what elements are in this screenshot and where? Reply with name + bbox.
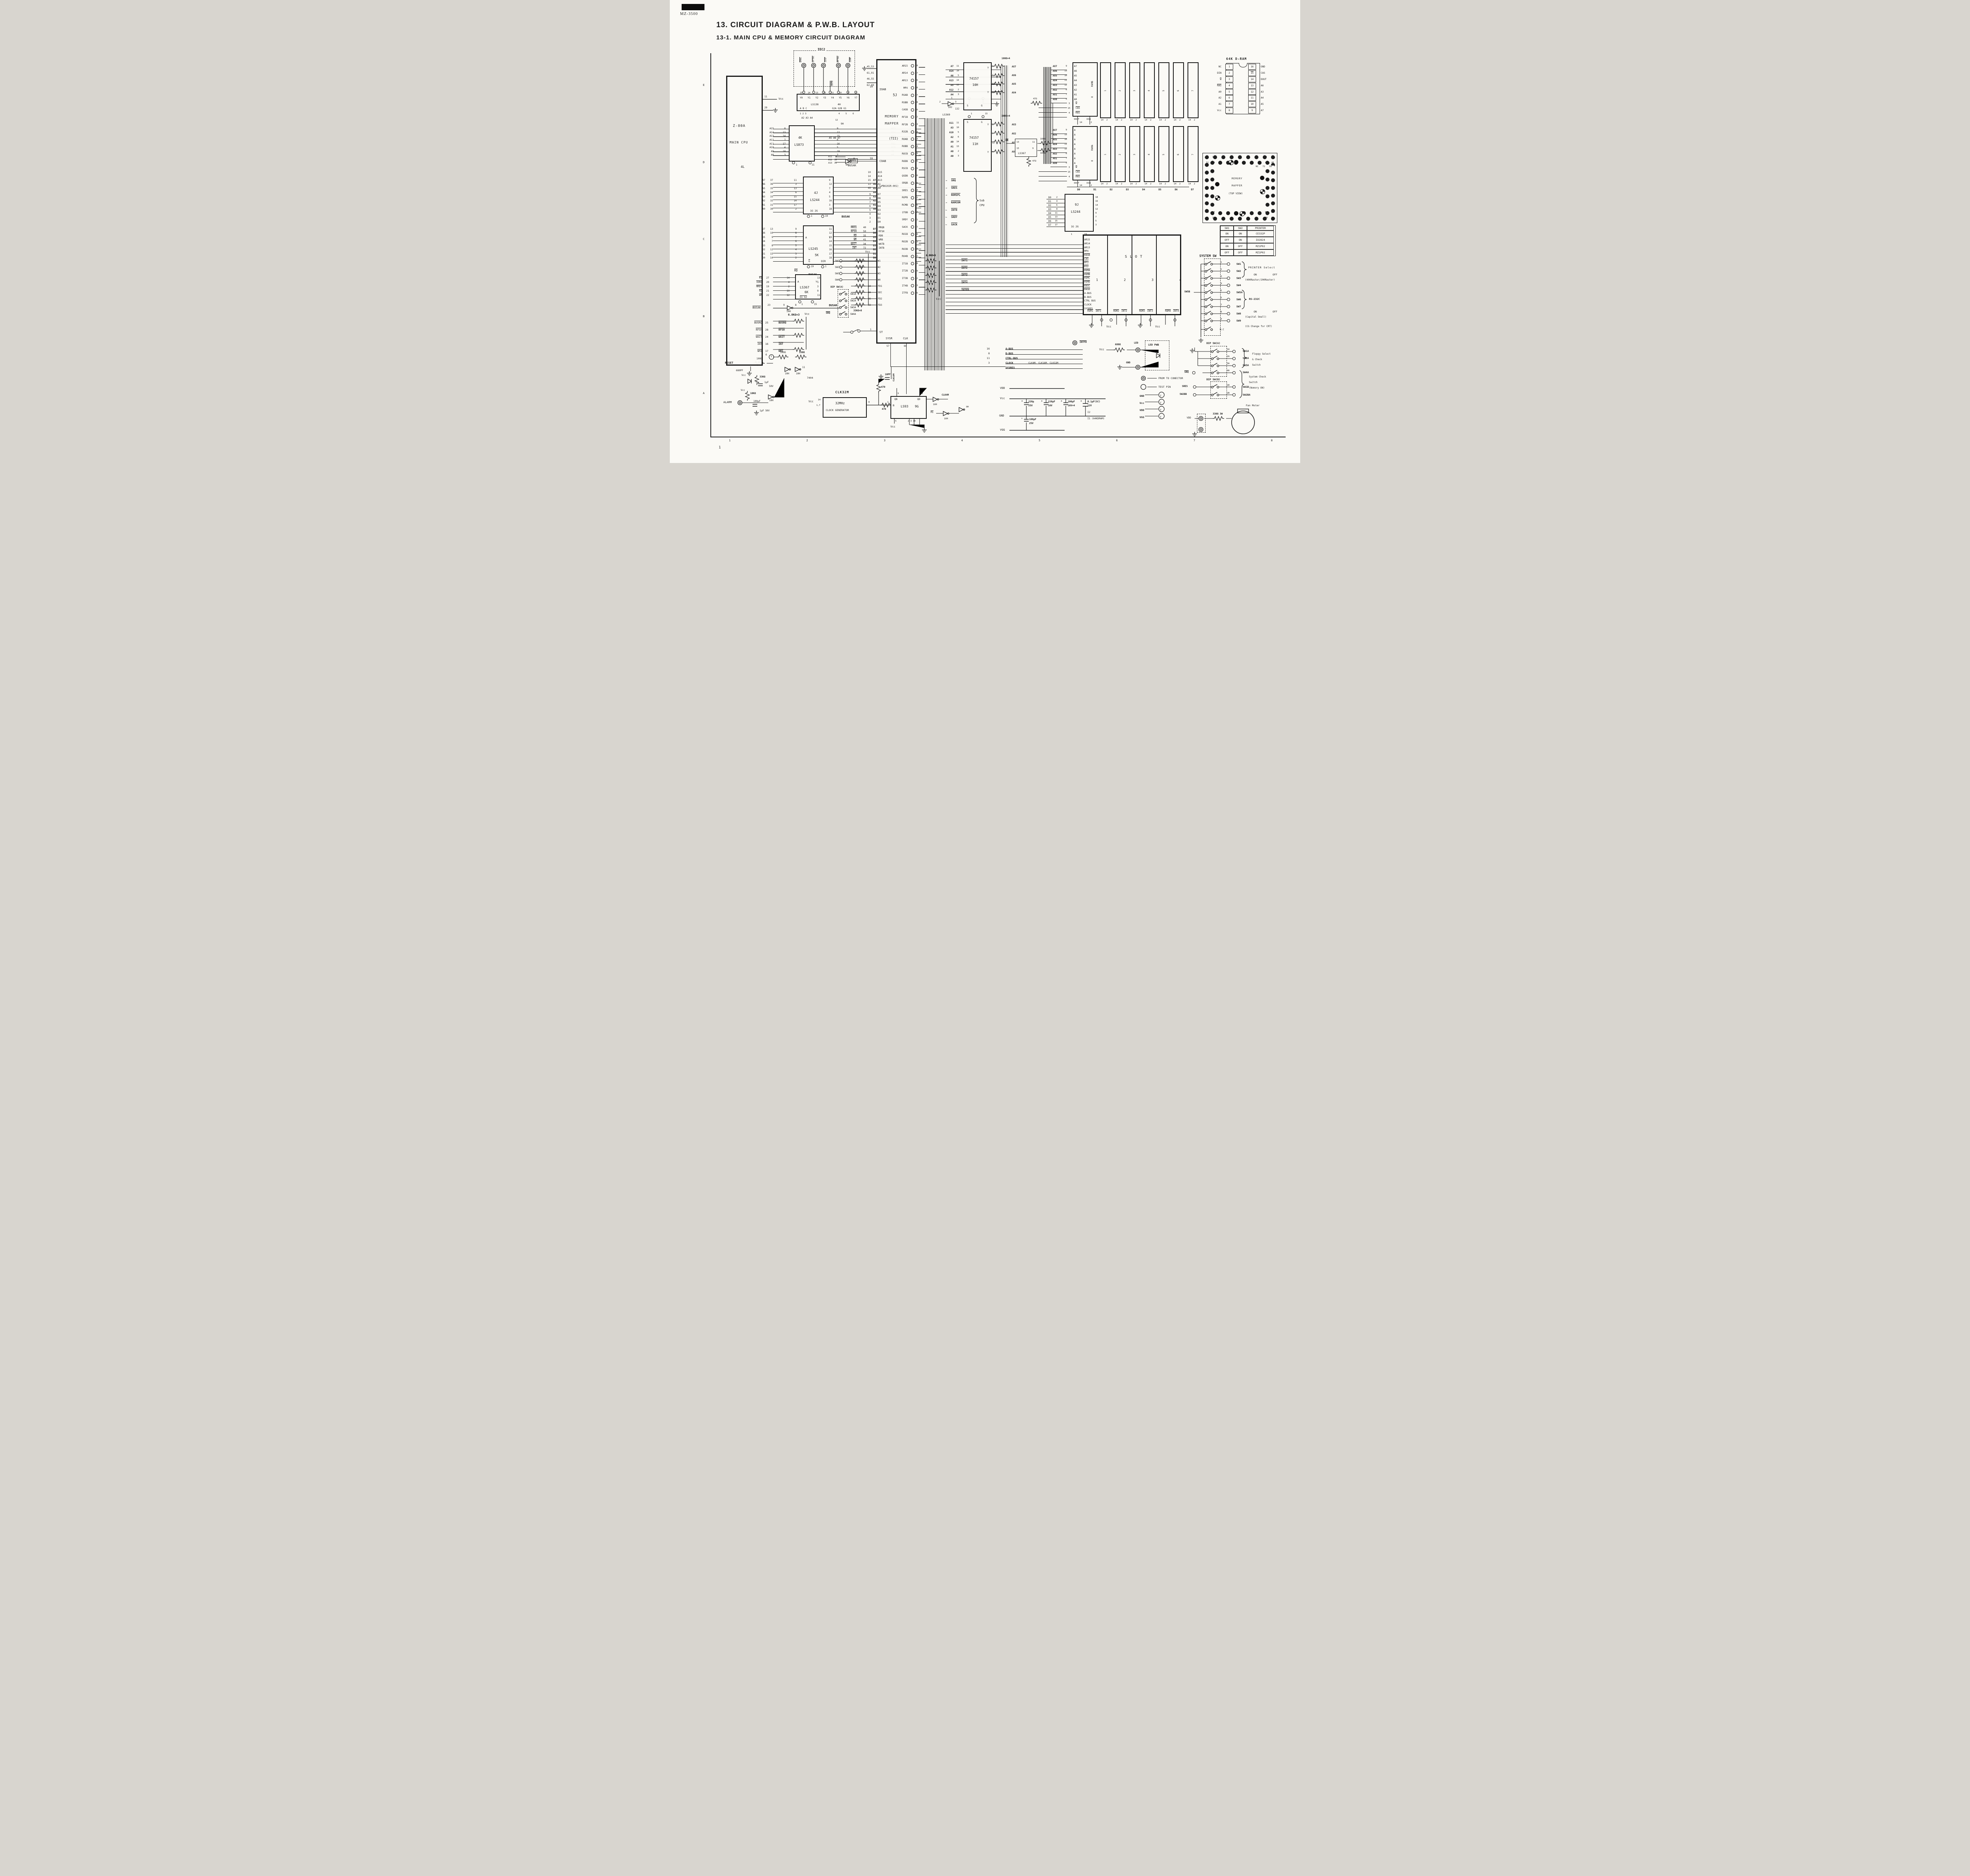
int-row: INTFD: [961, 286, 969, 294]
iec2-pin-label: MFTDC: [837, 52, 840, 62]
pin: 44: [864, 291, 871, 294]
pin: 9: [864, 193, 871, 196]
chip-p1: 14: [1101, 119, 1104, 121]
signal-label: ITFB: [896, 292, 908, 294]
ls138-y-label: Y5: [839, 97, 842, 99]
signal-label: RO2B: [896, 240, 908, 243]
ann-on1: ON: [1254, 273, 1257, 276]
chip-p1: 14: [1145, 119, 1147, 121]
buf9j-en1: 1: [1071, 233, 1072, 236]
pin-in: 3: [773, 183, 798, 186]
chip-p2: 2: [1121, 183, 1122, 185]
pin-in: 6: [773, 191, 798, 194]
mapper-ioab: IOAB: [879, 88, 886, 91]
pin-bubble: [911, 211, 914, 214]
bl-100u: 100µF: [753, 400, 760, 403]
pin: 14: [953, 141, 959, 143]
mapper-right-row: RO3B 64: [896, 245, 922, 253]
intfd-label: INTFD: [1080, 341, 1087, 344]
ls138-y: 7 Y7: [855, 96, 857, 99]
pin: 4: [864, 213, 871, 216]
signal-label: D0: [757, 257, 765, 259]
testpoint-t: T: [1144, 416, 1162, 419]
ls873-row: A15 8 9 A15: [764, 127, 896, 131]
pin: 6: [1061, 89, 1067, 91]
bl-c1u: 1µF: [764, 381, 769, 384]
pin-out: 16: [1057, 200, 1098, 203]
bufwr-b1: 11: [1032, 141, 1035, 143]
signal-net: INT: [768, 342, 794, 346]
chip-p2: 2: [1194, 183, 1195, 185]
rail-vcc: Vcc: [1000, 397, 1005, 400]
topview-pin: 20: [1204, 210, 1210, 215]
inv369-b: 3: [955, 101, 956, 103]
signal-label: WAIT: [749, 335, 762, 338]
dbus-label: D2: [1110, 188, 1113, 191]
mapper-data-row: 2 D0: [864, 220, 881, 224]
pin-in: 2: [773, 208, 798, 210]
sw-label: SW4: [1226, 284, 1241, 287]
sw-label: SW1A: [1232, 350, 1249, 353]
ramb-ras: RAS: [1076, 112, 1080, 115]
gnd-ref: 61,91: [867, 72, 874, 74]
bl-plus: +: [756, 381, 757, 384]
pin: 5: [953, 74, 959, 77]
pin: 12: [1061, 148, 1067, 150]
cpu-ref: 4L: [741, 165, 745, 169]
column-label: 5: [1039, 439, 1040, 442]
pin: 6: [1061, 152, 1067, 155]
pin: 30: [914, 175, 922, 177]
pin-bubble: [911, 123, 914, 126]
mux-out-row: 7 AX2: [992, 129, 1016, 138]
ls138-gp: 4: [838, 113, 840, 115]
topview-pin: 72: [1260, 165, 1267, 168]
pin: 39: [914, 270, 922, 272]
cap2-voltage: 25V: [1029, 422, 1033, 425]
redaction-bar: [682, 4, 704, 10]
ls93-gnd-pins: 2 3 10: [908, 420, 916, 422]
buffer-row: A2 32 14 16 A2: [757, 199, 876, 203]
topview-dot-check: [1215, 195, 1220, 201]
slot-pin-row: CTRL BUS: [1084, 299, 1096, 303]
pin-out: 18: [1057, 196, 1098, 199]
cpu-pin: 16: [762, 342, 768, 346]
pin: 23: [914, 138, 922, 140]
signal-label: A2: [946, 136, 953, 139]
mapper-right-row: RO2B 63: [896, 238, 922, 245]
dipa-title: DIP SW(A): [1206, 342, 1220, 345]
ram-ax-row: AX2 6 A2: [1053, 87, 1077, 92]
pin: 9: [992, 65, 997, 68]
cpu-pin: 28: [762, 328, 768, 331]
led-gnd: GND: [1126, 362, 1130, 364]
bufwr-a1: 13: [1017, 141, 1019, 143]
ls138-abc-pins: 1 2 3: [800, 113, 807, 115]
ls93-qd: QD: [917, 398, 920, 401]
signal-label: D1: [757, 253, 765, 255]
ls93-p12: 12: [920, 392, 923, 395]
signal-label: A8: [946, 150, 953, 153]
led-label: LED: [1134, 342, 1138, 345]
mapper-right-row: ITFB 36: [896, 289, 922, 297]
mapper-addr: 10 A15 14 A14 15 A13 13 A1 49 A0: [864, 170, 882, 190]
signal-label: INT: [749, 342, 762, 346]
c10pf: 10PF: [885, 374, 890, 376]
iec2-pin-label: DMAC: [800, 52, 802, 62]
ls873-row: A10 4 5 A10: [764, 146, 896, 150]
slot-vcc1: Vcc: [1106, 325, 1111, 329]
bl-inv2: 10H: [796, 373, 800, 376]
pullup-rows: BUSRQ 25 BUSRQ RFSH 28 RFSH WAIT 24 WAIT…: [749, 319, 794, 355]
ann-off2: OFF: [1273, 310, 1277, 313]
mapper-right-row: ROAB 23: [896, 136, 922, 143]
slot-pin-row: ROMB: [1084, 272, 1096, 276]
xcvr5k-dir: DIR: [821, 260, 826, 263]
ram-ax-row: AX1 7 A1: [1053, 92, 1077, 97]
signal-out: D1: [838, 253, 876, 255]
chip-number: 2: [1119, 87, 1122, 91]
pin-bubble: [911, 284, 914, 287]
mapper-right-row: IT1B 38: [896, 260, 922, 268]
page-number: 1: [719, 446, 721, 450]
frame-bottom: [710, 437, 1286, 437]
signal-label: A9: [946, 141, 953, 143]
slot-vcc2: Vcc: [1155, 325, 1160, 329]
mapper-right-row: ROPB 22: [896, 194, 922, 202]
ram-ax-row: AX7 9 A: [1053, 128, 1076, 132]
pin-out: 15: [799, 135, 850, 138]
cpu-pin: 17: [762, 350, 768, 353]
cpu-pin: 7: [765, 240, 773, 243]
ax-label: AX2: [1053, 152, 1061, 155]
mapper-right-row: RF2B 33: [896, 121, 922, 128]
ls138-y: 9 Y6: [847, 96, 849, 99]
mux-out-row: 12 AX1: [992, 138, 1016, 147]
mapper-data-row: 5 D3: [864, 208, 881, 212]
signal-label: A1: [757, 204, 765, 206]
subcpu-rows: → SRQ → SRES → ROMIPL → RAMCOM ← INT0: [946, 177, 960, 228]
chip-number: 3: [1134, 151, 1136, 155]
chip-p1: 14: [1130, 183, 1133, 185]
dbus-label: D3: [1126, 188, 1129, 191]
a-label: A: [1067, 162, 1076, 165]
sw-label: SW4: [831, 279, 839, 281]
int-label: INT1: [961, 259, 968, 262]
sw-number: 7: [1221, 304, 1226, 306]
sw-label: SW7: [1226, 305, 1241, 308]
signal-label: D2: [1045, 204, 1051, 207]
arrow: →: [946, 186, 951, 190]
signal-label: A13: [764, 135, 774, 138]
dip-row: SW3A: [850, 304, 856, 311]
iec2-pins: DMACSFTDCIOSFMFTDCIOMF: [800, 52, 852, 62]
inv369-ref: 10J: [948, 106, 952, 109]
pin: 28: [914, 101, 922, 104]
brace-line: & Check: [1252, 357, 1271, 363]
bus-row: 3 CLOCK CLK4M, CLK16M, CLK32M: [983, 361, 1058, 365]
mapper-right-row: RODB 26: [896, 158, 922, 165]
dbus-label: D0: [1077, 188, 1080, 191]
a-label: A: [1067, 134, 1076, 136]
ax-label: AX2: [1053, 89, 1061, 91]
pin: 16: [914, 79, 922, 82]
chip-p1: 14: [1145, 183, 1147, 185]
dram-pin-row: 9 A7: [1248, 108, 1266, 114]
ls138-gate: 9H: [841, 123, 844, 126]
chip-p2: 2: [1165, 183, 1166, 185]
sw-label: SW3: [1226, 277, 1241, 280]
rama-din-pin: 2: [1091, 184, 1092, 187]
sw-number: 2: [1221, 268, 1226, 271]
bl-gate: 10H: [769, 400, 773, 402]
power-n1: I1 (64KDRAM): [1087, 418, 1104, 420]
signal-ext: WAIT: [846, 243, 857, 245]
signal-label: D5: [1045, 216, 1051, 219]
slot-pin-row: AR13: [1084, 245, 1096, 249]
signal-net: WAIT: [768, 335, 794, 338]
chip-number: 7: [1192, 87, 1195, 91]
pin: 9: [992, 124, 997, 126]
ram-ax-row: AX2 6 A: [1053, 151, 1076, 156]
pin-out: 19: [799, 150, 850, 153]
buffer-row: A5 35 13 7 A5: [757, 186, 876, 191]
clockgen-vcc: Vcc: [808, 400, 814, 403]
signal-label: D7: [871, 193, 881, 196]
dbus-line: [1067, 187, 1189, 187]
businv-b: 8: [795, 304, 797, 307]
mux-in-row: A5 13: [946, 83, 959, 87]
pin-in: 4: [1051, 200, 1057, 203]
pin-in: 13: [1051, 216, 1057, 218]
pin-bubble: [911, 196, 914, 199]
signal-label: AR13: [896, 79, 908, 82]
signal-label: A12: [764, 139, 774, 141]
mapper-right-row: RF1B 32: [896, 113, 922, 121]
ann-cg: (CG Change for CRT): [1245, 325, 1272, 328]
mux-out-row: 9 AX3: [992, 120, 1016, 129]
ramb-cas: CAS: [1076, 107, 1080, 110]
slot-pin-row: MPX: [1084, 249, 1096, 253]
r470a: 470: [881, 386, 885, 389]
pin-out: 16: [798, 199, 838, 202]
pin: 3: [953, 93, 959, 96]
mapper-right-row: ROCB 25: [896, 150, 922, 158]
chip-p2: 2: [1136, 183, 1137, 185]
slot-pin-row: AR15: [1084, 238, 1096, 242]
ls873-oe-pin: 11: [812, 164, 814, 167]
mapper-clk: CLK: [903, 337, 908, 340]
signal-label: A10: [946, 131, 953, 134]
dram-pin-row: A2 6: [1212, 95, 1233, 101]
pin-bubble: [911, 277, 914, 280]
printer-table-row: ON ON CE332P: [1220, 231, 1275, 237]
businv-sig: BUSAK: [753, 307, 761, 310]
cpu-pin: 25: [762, 321, 768, 324]
pin: 12: [992, 83, 997, 85]
coab-out: 8: [853, 158, 855, 160]
ramb-bank: 0: [1091, 94, 1094, 98]
ls873-en-pin: 1: [796, 164, 797, 167]
dbus-label: D1: [1093, 188, 1096, 191]
ram-chip: 5 14 2: [1158, 62, 1169, 118]
pin: 6: [953, 136, 959, 138]
dip-row: 3A SW3A: [1227, 362, 1249, 369]
muxa-name: 74157: [969, 77, 979, 81]
ramb-dout-pin: 14: [1080, 121, 1082, 124]
int-label: INTFD: [961, 288, 969, 292]
pin: 10: [832, 159, 837, 161]
pin: 35: [857, 234, 866, 237]
mux-in-row: A1 13: [946, 144, 959, 149]
a-label: A3: [1067, 84, 1077, 87]
dram-title: 64K D-RAM: [1226, 58, 1247, 61]
pin-label: A5: [1256, 103, 1264, 106]
inv369-en: 1: [951, 97, 952, 99]
arrow: →: [946, 179, 951, 182]
topview-pin: NC: [1254, 165, 1260, 168]
slot-pin-label: AR13: [1084, 246, 1090, 249]
buffer-row: D4 11 9: [1045, 211, 1098, 215]
ls93-p1: 1: [887, 401, 888, 403]
signal-label: A4: [757, 191, 765, 194]
syssw-row: 7 SW7: [1221, 303, 1243, 310]
ram-chip: 2 14 2: [1115, 62, 1126, 118]
pin-bubble: [911, 152, 914, 155]
signal-label: A0: [757, 208, 765, 210]
net-busak: BUSAK: [848, 164, 856, 167]
muxa-ref: 10H: [972, 84, 978, 87]
bus-count: 8: [983, 352, 990, 355]
mux-in-row: A13 14: [946, 78, 959, 83]
ram-ax-row: AX6 13 A6: [1053, 69, 1077, 73]
pin: 43: [914, 284, 922, 287]
slot-div3: [1156, 235, 1157, 314]
ramb-din-pin: 2: [1091, 121, 1092, 124]
coab-inputs: A11 9 A12 10 A13 11: [826, 155, 837, 165]
pin: 33: [914, 123, 922, 126]
ramb-ax-rows: AX7 9 A7 AX6 13 A6 AX5 10 A5 AX4 11 A4: [1053, 64, 1077, 102]
pin-bubble: [911, 233, 914, 236]
page-title: 13. CIRCUIT DIAGRAM & P.W.B. LAYOUT: [716, 21, 875, 30]
mapper-right-row: ROBB 24: [896, 143, 922, 151]
legend-test: TEST PIN: [1158, 386, 1171, 389]
pin: 29: [914, 167, 922, 170]
subcpu-row: → RAMCOM: [946, 199, 960, 206]
int-outs: INT1 INT2 INT3 INT4 INTFD: [961, 257, 969, 294]
pin-label: NC: [1212, 65, 1221, 68]
ls138-y-pin: 9: [847, 92, 849, 94]
pin-cell: 5: [1225, 89, 1233, 95]
cpu-pin: 20: [762, 281, 769, 284]
slot-pin-row: RF2: [1084, 261, 1096, 265]
pin: 13: [953, 84, 959, 86]
slot-col-number: 2: [1124, 278, 1126, 282]
dram-pin-row: 10 A5: [1248, 101, 1266, 108]
mapper-right-row: QSDB 30: [896, 172, 922, 180]
mapper-dip-title: DIP SW(A): [831, 286, 844, 289]
signal-label: A11: [764, 143, 774, 145]
pin: 52: [839, 279, 866, 281]
pin-label: W: [1212, 78, 1221, 81]
ctrl-row: WR 22 12 11: [750, 293, 825, 297]
cap-plus: +: [1041, 400, 1043, 403]
ram-chip: 5 14 2: [1158, 126, 1169, 182]
cpu-gnd-pin: 29: [764, 107, 767, 110]
mapper-right-pins: AR15 18 AR14 17 AR13 16 MPX 68: [896, 62, 922, 297]
subcpu-res: 6.8KΩ×5: [926, 255, 936, 257]
topview-l1: MEMORY: [1231, 177, 1243, 181]
signal-label: A5: [757, 187, 765, 190]
pin-label: CAS: [1256, 72, 1265, 74]
bl-inv1: 10H: [785, 373, 789, 376]
testpoint-t: T: [1144, 395, 1162, 398]
ann-on2: ON: [1254, 310, 1257, 313]
chip-p2: 2: [1136, 119, 1137, 121]
ax-label: AX5: [1053, 74, 1061, 77]
dbus-label: D5: [1158, 188, 1161, 191]
pin: 13: [1061, 134, 1067, 136]
signal-label: A13: [946, 79, 953, 82]
signal-label: IT1B: [896, 262, 908, 265]
int-label: INT3: [961, 273, 968, 277]
signal-label: A13: [826, 162, 832, 164]
signal-label: AR14: [896, 72, 908, 74]
pin: 14: [864, 175, 871, 178]
mapper-sw-row: SW3 51 SW3: [831, 270, 881, 277]
xcvr5k-g: G: [808, 260, 810, 263]
mapper-st-pin: 1: [870, 329, 872, 331]
buf9j-rows: D0 2 18 D1 4 16 D2 6 14 D3 8 12: [1045, 195, 1098, 227]
signal-label: A14: [764, 131, 774, 134]
signal-int: INTB: [866, 247, 884, 249]
column-labels: 12345678: [729, 439, 1273, 442]
pin-out: 14: [1057, 204, 1098, 206]
ram-ax-row: AX4 11 A4: [1053, 78, 1077, 83]
buf4j-en-label: BUSAK: [842, 216, 850, 219]
xcvr5k-rd: RD: [794, 270, 797, 273]
rama-chips: 1 14 2 2 14 2 3 14 2 4 14 2: [1100, 126, 1199, 182]
signal-label: A14: [871, 175, 882, 178]
slot-pins: AR15 AR14 AR13 MPX RASB CAS RF2: [1084, 238, 1096, 310]
mapper-ctrl: MREQ 40 MRQB RFSH 50 RFSH RD 35 RDB WR 4…: [846, 225, 884, 250]
pin: 47: [839, 260, 866, 262]
cap-value: 220µ: [1028, 400, 1034, 403]
pin-in: 15: [1051, 220, 1057, 222]
mapper-fd: 54 FD1 44 SEC 56 FD2 58 FD3: [864, 283, 882, 308]
pin-label: A1: [1212, 103, 1221, 106]
pin: 13: [864, 183, 871, 186]
buffer-row: D0 2 18: [1045, 195, 1098, 199]
ls138-y: 14 Y1: [808, 96, 810, 99]
pin: 18: [914, 65, 922, 67]
sw-label: SW3A: [850, 306, 856, 309]
chip-p1: 14: [1174, 183, 1176, 185]
pin: 4: [992, 91, 997, 94]
mapper-data-row: 7 D5: [864, 200, 881, 204]
pin-cell: 2: [1225, 70, 1233, 76]
signal-label: SACK: [896, 226, 908, 229]
dip-row: SW2A: [850, 297, 856, 304]
mapper-right-row: SRDY 21: [896, 216, 922, 223]
ramb-w: W: [1076, 102, 1077, 105]
signal-int: WRB: [866, 238, 883, 241]
pin-in: 15: [773, 195, 798, 198]
signal-label: D4: [1045, 212, 1051, 215]
slot-div2: [1132, 235, 1132, 314]
bus-name: CTRL-BUS: [990, 357, 1026, 360]
cpu-name: Z-80A: [733, 125, 745, 128]
